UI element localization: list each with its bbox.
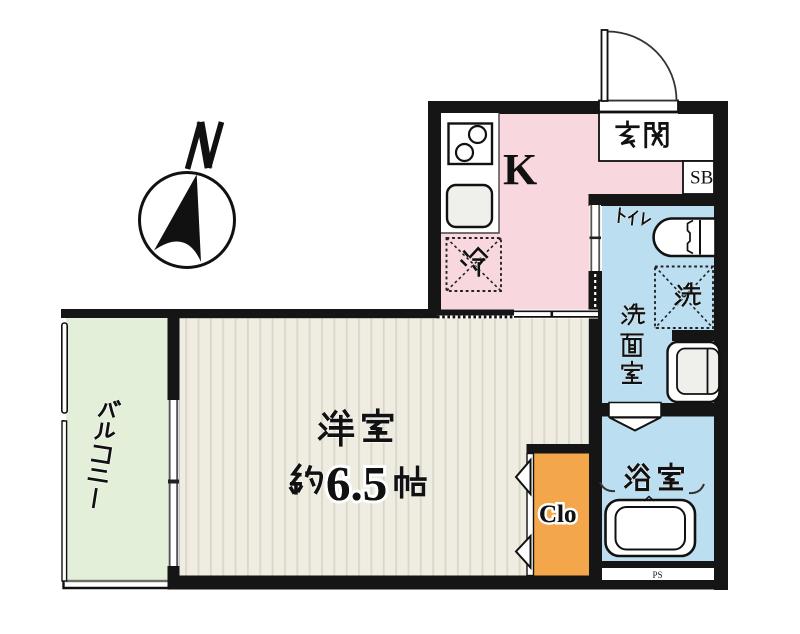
svg-text:Clo: Clo — [539, 501, 577, 528]
svg-text:K: K — [503, 145, 537, 194]
svg-text:SB: SB — [690, 168, 713, 189]
svg-text:6.5: 6.5 — [326, 456, 387, 511]
svg-text:PS: PS — [653, 570, 663, 580]
